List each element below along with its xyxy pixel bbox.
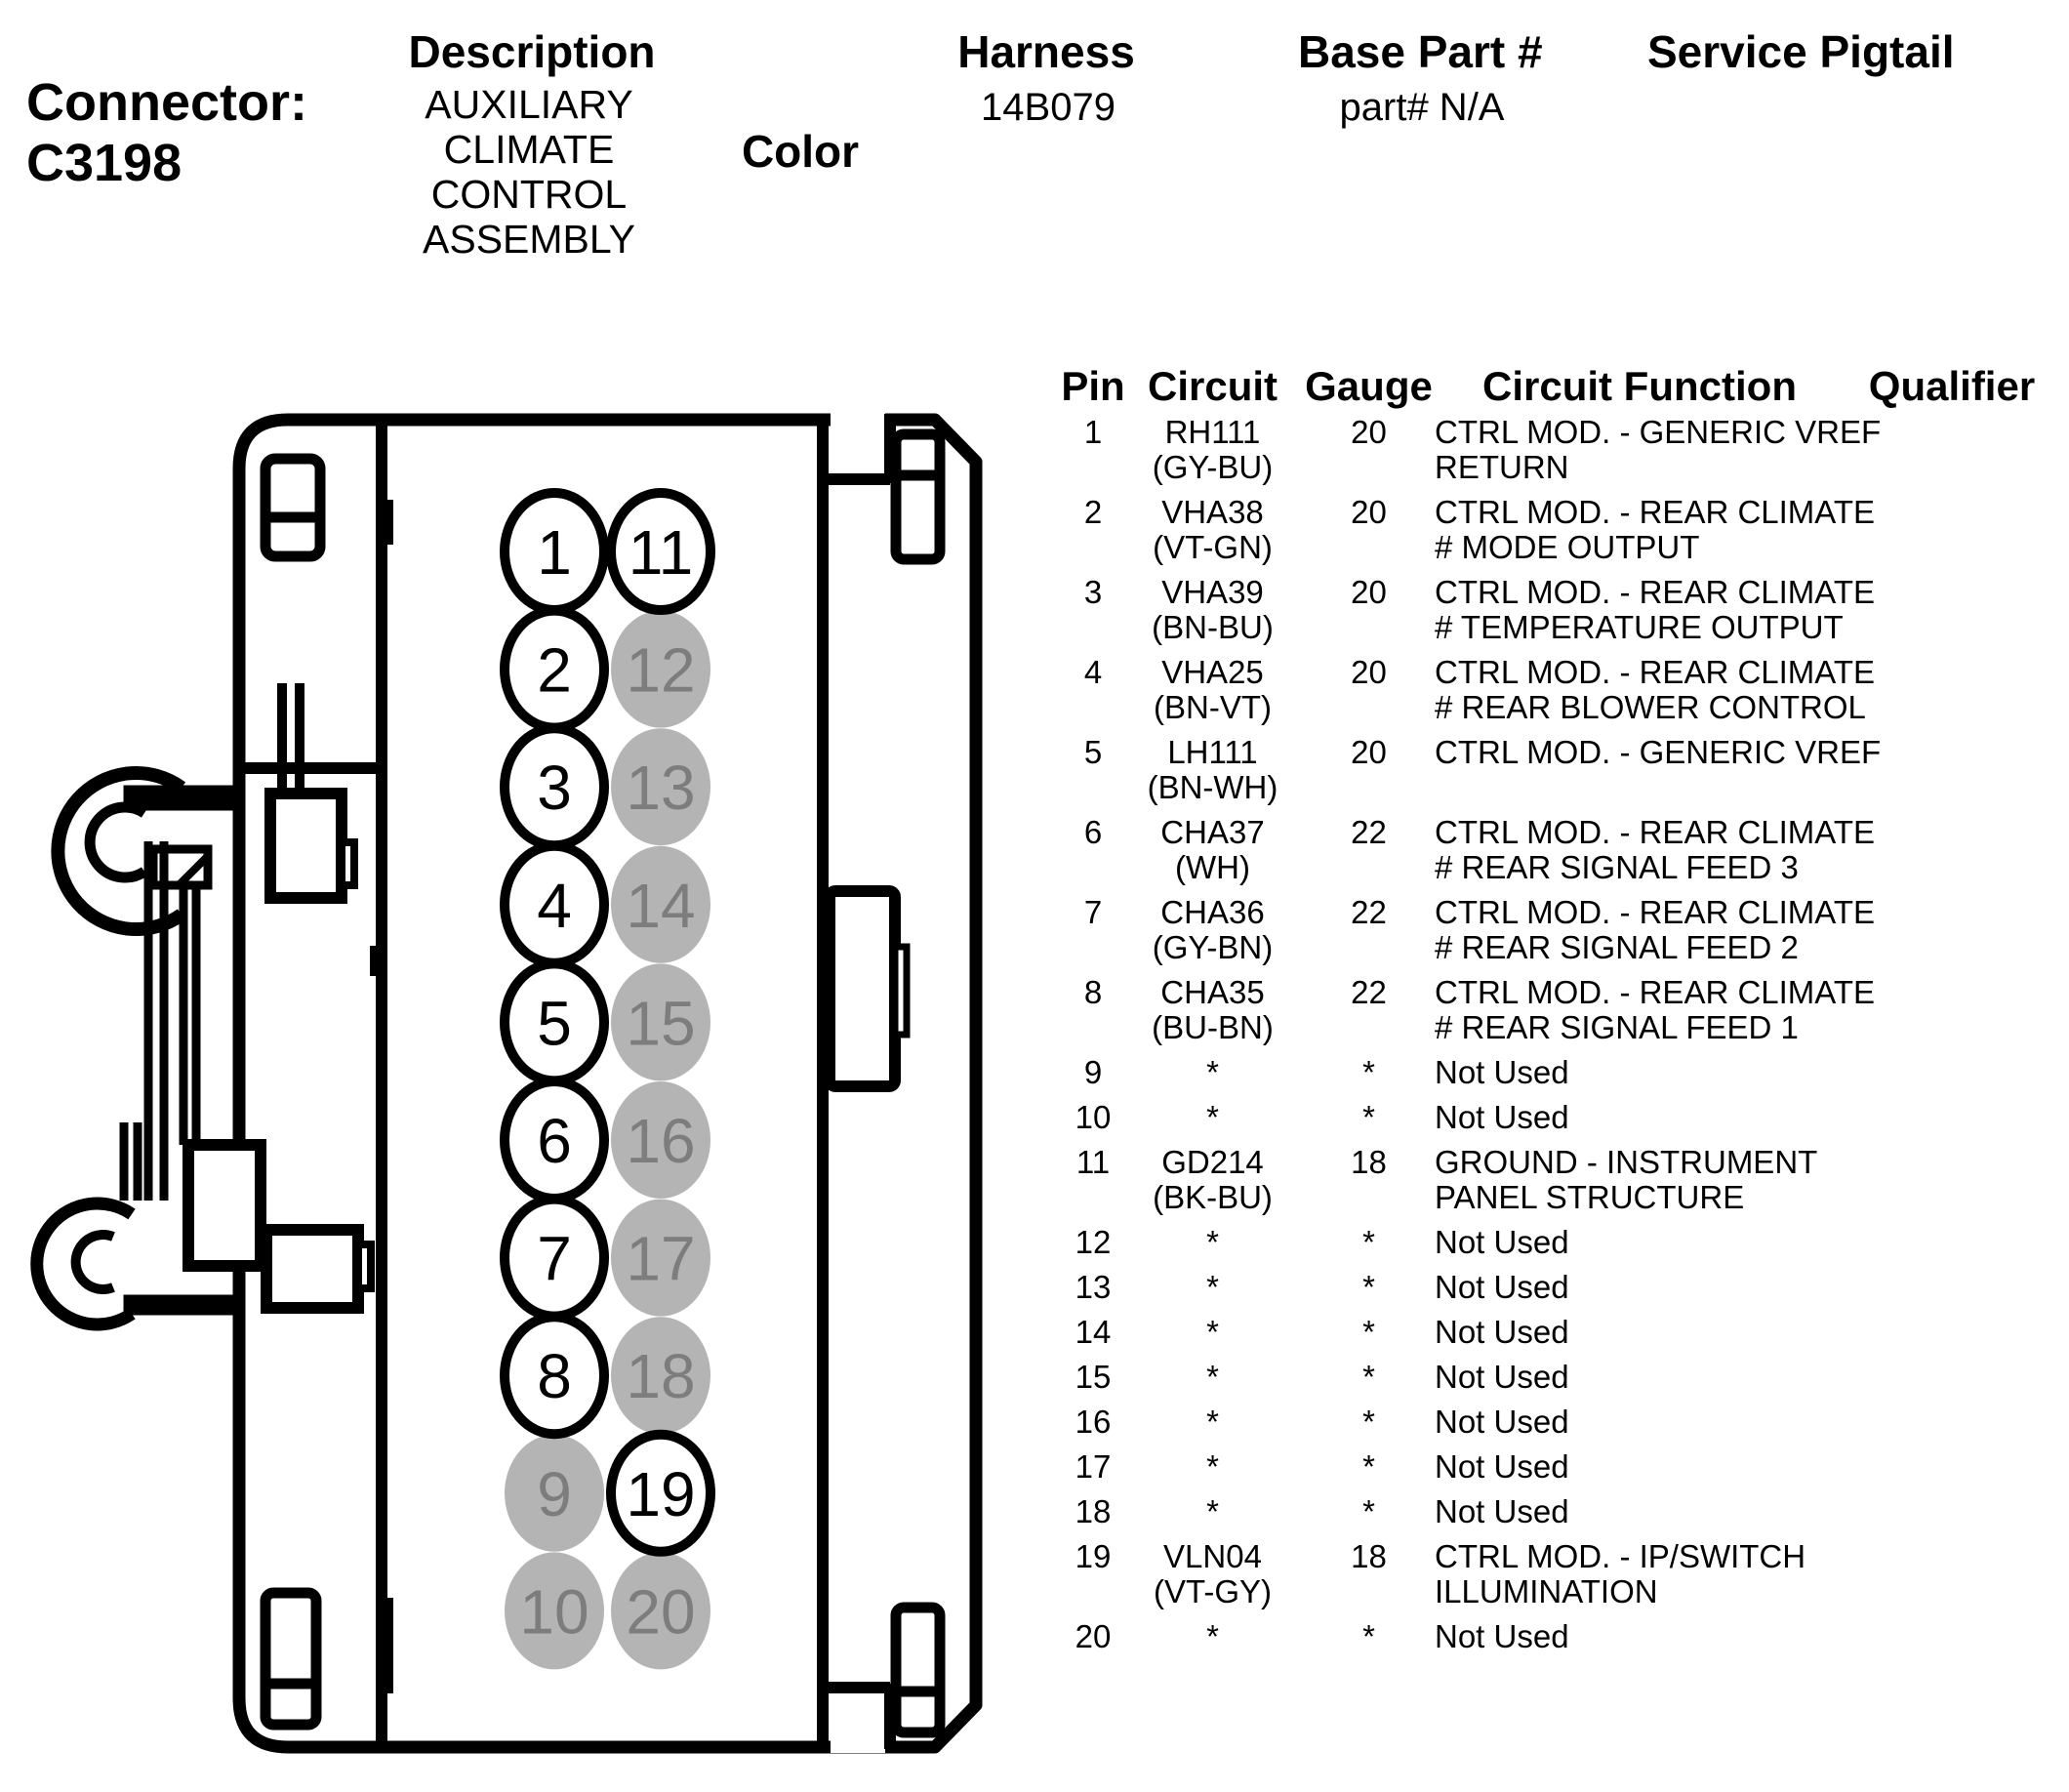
bracket-hook-lower-inner <box>76 1235 113 1289</box>
column-header-circuit-function: Circuit Function <box>1444 363 1835 410</box>
pin-number-18: 18 <box>626 1341 695 1411</box>
connector-title-label: Connector: <box>26 73 307 132</box>
description-line: CLIMATE <box>383 127 675 172</box>
description-line: AUXILIARY <box>383 82 675 127</box>
bracket-hook-lower-outer <box>37 1203 132 1324</box>
pin-number-13: 13 <box>626 753 695 823</box>
divider-nub-bottom <box>382 1598 393 1693</box>
connector-id: C3198 <box>26 134 182 192</box>
side-latch-tab <box>830 891 895 1086</box>
latch-bottom-right <box>896 1608 940 1732</box>
slot-gap-bottom <box>831 1733 885 1753</box>
pin-number-9: 9 <box>537 1459 572 1529</box>
base-part-value: part# N/A <box>1300 86 1544 130</box>
connector-drawing: 9101213141516171820123456781119 <box>0 273 1034 1792</box>
pin-number-19: 19 <box>626 1459 695 1529</box>
bracket-bar-upper <box>124 786 241 810</box>
connector-pinout-page: Connector: C3198 Description AUXILIARY C… <box>0 0 2069 1792</box>
pin-number-3: 3 <box>537 753 572 823</box>
pin-number-2: 2 <box>537 635 572 706</box>
pin-number-14: 14 <box>626 871 695 941</box>
pin-number-15: 15 <box>626 988 695 1058</box>
pin-number-8: 8 <box>537 1341 572 1411</box>
pin-number-7: 7 <box>537 1224 572 1294</box>
bracket-window-lower-nub <box>358 1244 371 1288</box>
connector-title: Connector: C3198 <box>26 72 307 193</box>
description-line: CONTROL <box>383 172 675 217</box>
slot-gap-top <box>831 410 885 430</box>
description-line: ASSEMBLY <box>383 217 675 262</box>
divider-nub-top <box>382 500 393 545</box>
bracket-post <box>188 1145 261 1266</box>
color-header: Color <box>703 125 898 178</box>
column-header-qualifier: Qualifier <box>1825 363 2069 410</box>
bracket-window-lower <box>266 1230 358 1308</box>
side-latch-nub <box>895 947 907 1035</box>
pin-number-20: 20 <box>626 1576 695 1647</box>
harness-header: Harness <box>949 25 1144 78</box>
bracket-window-upper-nub <box>342 842 354 885</box>
pin-number-10: 10 <box>519 1576 588 1647</box>
bracket-window-upper <box>270 794 342 898</box>
bracket-hook-upper-inner <box>90 807 144 877</box>
pin-number-1: 1 <box>537 517 572 588</box>
service-pigtail-header: Service Pigtail <box>1647 25 1940 78</box>
description-value: AUXILIARY CLIMATE CONTROL ASSEMBLY <box>383 82 675 262</box>
pin-number-5: 5 <box>537 988 572 1058</box>
description-header: Description <box>385 25 678 78</box>
latch-bottom-left <box>265 1593 316 1725</box>
pin-number-6: 6 <box>537 1106 572 1176</box>
pin-number-16: 16 <box>626 1106 695 1176</box>
column-header-gauge: Gauge <box>1298 363 1440 410</box>
divider-nub-mid <box>370 946 382 976</box>
latch-top-right <box>896 434 940 559</box>
latch-top-left <box>265 459 320 556</box>
base-part-header: Base Part # <box>1298 25 1542 78</box>
harness-value: 14B079 <box>951 86 1146 130</box>
bracket-bar-lower <box>124 1295 241 1315</box>
column-header-circuit: Circuit <box>1122 363 1303 410</box>
pin-number-12: 12 <box>626 635 695 706</box>
pin-number-4: 4 <box>537 871 572 941</box>
pin-number-17: 17 <box>626 1224 695 1294</box>
pin-number-11: 11 <box>629 517 693 588</box>
